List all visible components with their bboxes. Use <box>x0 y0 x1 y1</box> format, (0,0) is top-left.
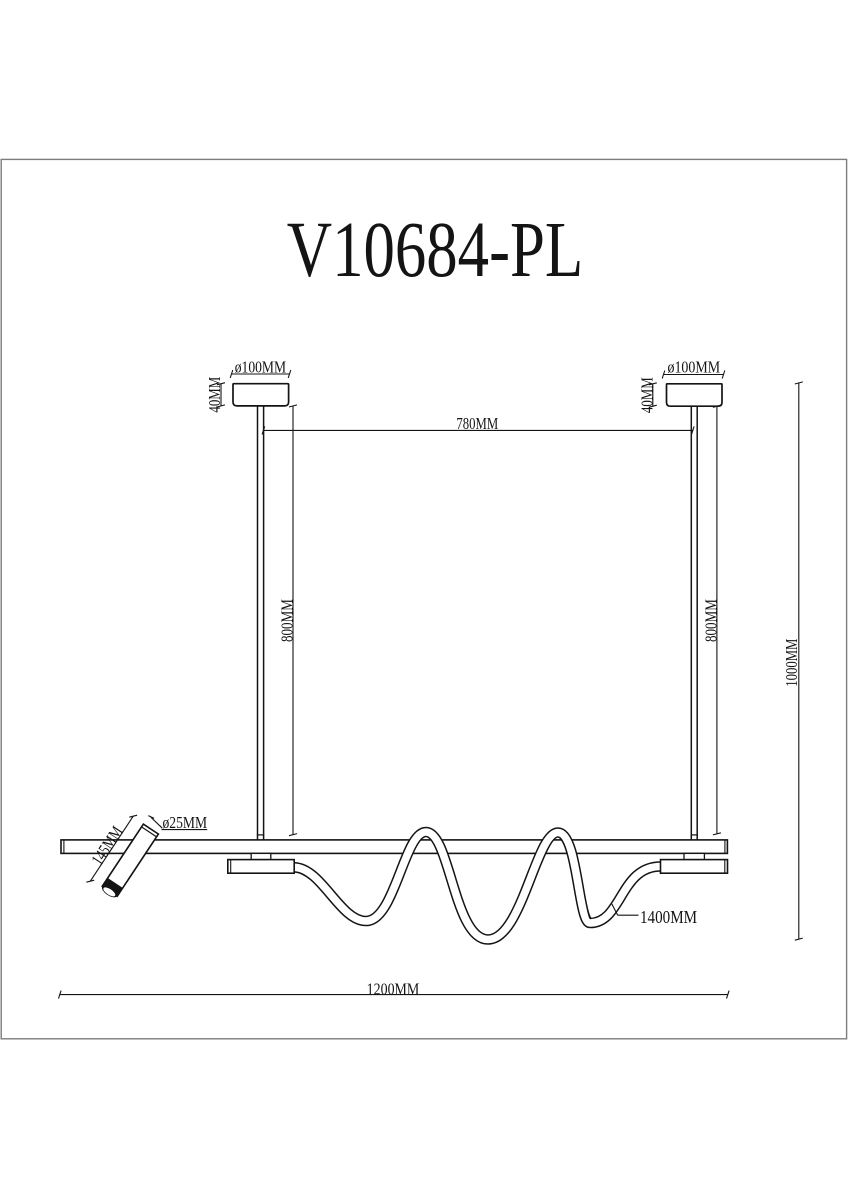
svg-text:V10684-PL: V10684-PL <box>287 206 584 293</box>
svg-text:40MM: 40MM <box>639 377 657 413</box>
svg-text:800MM: 800MM <box>702 599 721 642</box>
svg-text:ø100MM: ø100MM <box>667 358 720 377</box>
svg-text:ø100MM: ø100MM <box>235 358 287 377</box>
svg-text:1200MM: 1200MM <box>367 980 420 999</box>
svg-text:1400MM: 1400MM <box>640 907 697 928</box>
svg-text:ø25MM: ø25MM <box>163 813 208 832</box>
svg-text:800MM: 800MM <box>278 599 297 642</box>
svg-text:40MM: 40MM <box>206 377 224 413</box>
svg-text:1000MM: 1000MM <box>783 639 801 687</box>
svg-text:780MM: 780MM <box>456 416 498 434</box>
